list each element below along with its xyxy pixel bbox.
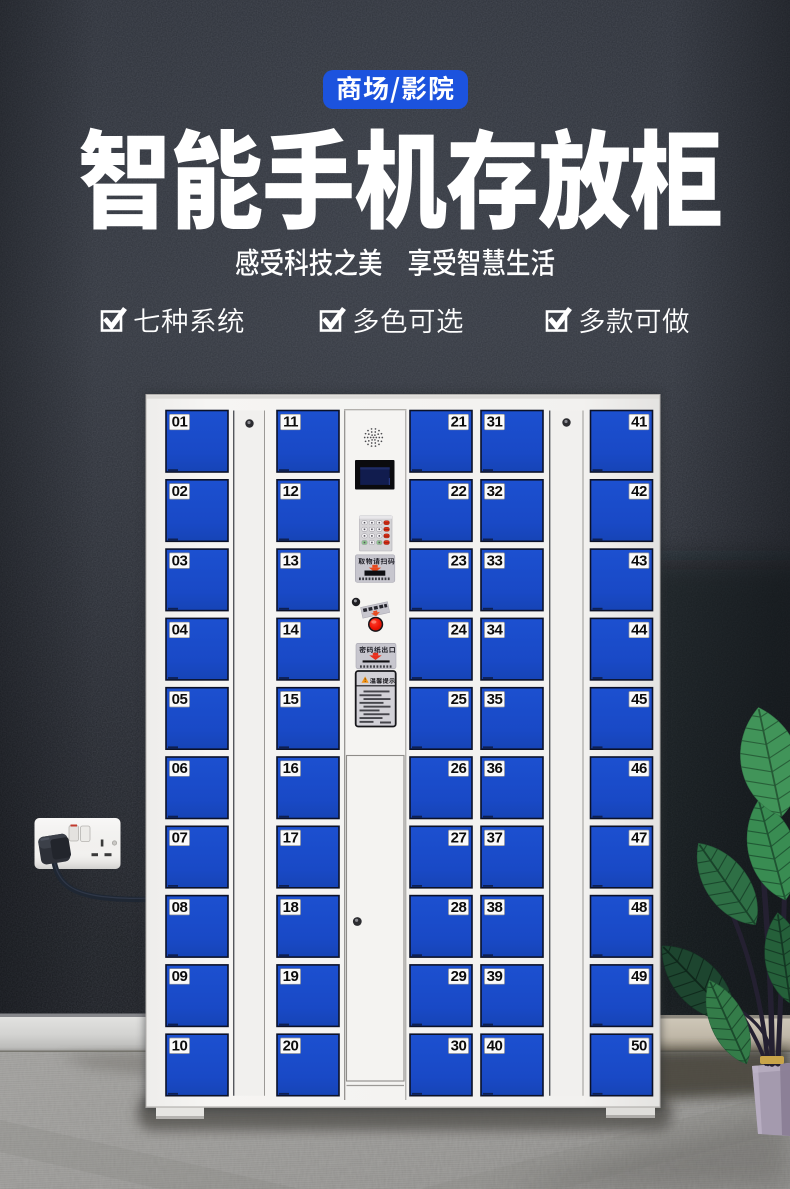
svg-text:14: 14 bbox=[283, 622, 300, 639]
svg-text:10: 10 bbox=[172, 1037, 188, 1054]
svg-text:25: 25 bbox=[451, 691, 467, 708]
svg-text:43: 43 bbox=[631, 552, 647, 569]
svg-text:06: 06 bbox=[172, 760, 188, 777]
svg-text:16: 16 bbox=[283, 760, 299, 777]
svg-text:26: 26 bbox=[451, 760, 467, 777]
svg-text:18: 18 bbox=[283, 899, 299, 916]
svg-text:42: 42 bbox=[631, 483, 647, 500]
svg-text:05: 05 bbox=[172, 691, 188, 708]
svg-text:29: 29 bbox=[451, 968, 467, 985]
svg-text:34: 34 bbox=[487, 622, 504, 639]
svg-text:27: 27 bbox=[451, 830, 467, 847]
svg-text:02: 02 bbox=[172, 483, 188, 500]
svg-text:07: 07 bbox=[172, 830, 188, 847]
svg-text:09: 09 bbox=[172, 968, 188, 985]
svg-text:13: 13 bbox=[283, 552, 299, 569]
svg-text:45: 45 bbox=[631, 691, 647, 708]
svg-text:38: 38 bbox=[487, 899, 503, 916]
svg-text:21: 21 bbox=[451, 414, 467, 431]
svg-text:44: 44 bbox=[631, 622, 648, 639]
svg-text:19: 19 bbox=[283, 968, 299, 985]
svg-text:30: 30 bbox=[451, 1037, 467, 1054]
svg-text:31: 31 bbox=[487, 414, 503, 431]
svg-text:17: 17 bbox=[283, 830, 299, 847]
svg-text:22: 22 bbox=[451, 483, 467, 500]
svg-text:50: 50 bbox=[631, 1037, 647, 1054]
svg-text:01: 01 bbox=[172, 414, 188, 431]
svg-text:46: 46 bbox=[631, 760, 647, 777]
svg-text:12: 12 bbox=[283, 483, 299, 500]
svg-text:23: 23 bbox=[451, 552, 467, 569]
svg-text:37: 37 bbox=[487, 830, 503, 847]
svg-text:15: 15 bbox=[283, 691, 299, 708]
svg-text:36: 36 bbox=[487, 760, 503, 777]
svg-text:04: 04 bbox=[172, 622, 189, 639]
svg-text:03: 03 bbox=[172, 552, 188, 569]
svg-text:33: 33 bbox=[487, 552, 503, 569]
svg-text:35: 35 bbox=[487, 691, 503, 708]
svg-text:47: 47 bbox=[631, 830, 647, 847]
svg-text:11: 11 bbox=[283, 414, 298, 431]
svg-text:48: 48 bbox=[631, 899, 647, 916]
svg-text:20: 20 bbox=[283, 1037, 299, 1054]
svg-text:24: 24 bbox=[451, 622, 468, 639]
svg-text:40: 40 bbox=[487, 1037, 503, 1054]
svg-text:08: 08 bbox=[172, 899, 188, 916]
svg-text:41: 41 bbox=[631, 414, 647, 431]
svg-text:28: 28 bbox=[451, 899, 467, 916]
svg-text:49: 49 bbox=[631, 968, 647, 985]
svg-text:39: 39 bbox=[487, 968, 503, 985]
svg-text:32: 32 bbox=[487, 483, 503, 500]
